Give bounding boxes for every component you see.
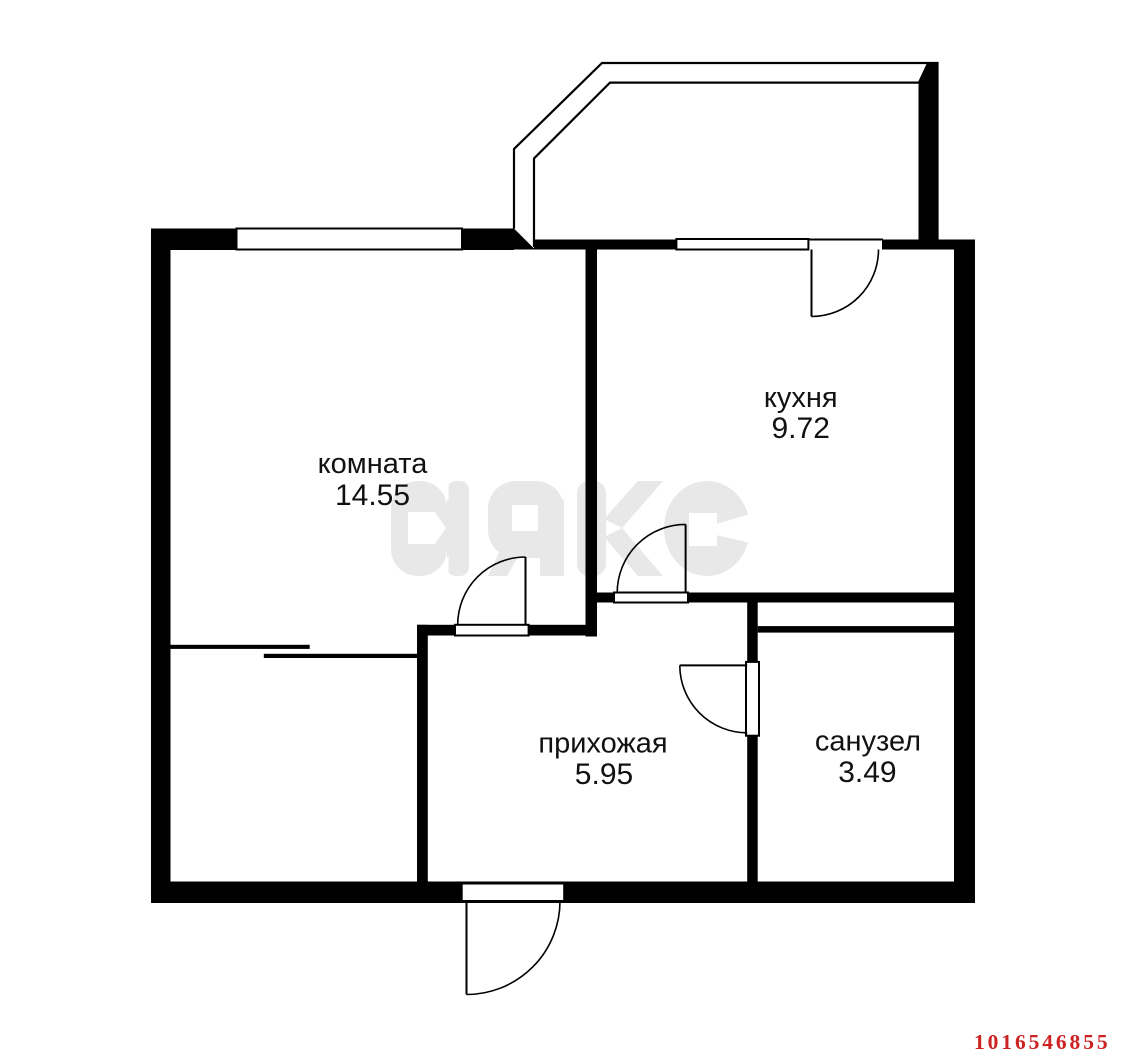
svg-text:1016546855: 1016546855 xyxy=(974,1030,1111,1054)
svg-text:9.72: 9.72 xyxy=(772,412,830,445)
svg-text:санузел: санузел xyxy=(815,726,921,758)
svg-text:5.95: 5.95 xyxy=(575,758,633,791)
svg-text:3.49: 3.49 xyxy=(838,756,896,789)
svg-text:комната: комната xyxy=(318,448,429,480)
svg-text:кухня: кухня xyxy=(764,382,838,414)
svg-text:14.55: 14.55 xyxy=(335,479,410,512)
svg-text:прихожая: прихожая xyxy=(538,728,667,760)
